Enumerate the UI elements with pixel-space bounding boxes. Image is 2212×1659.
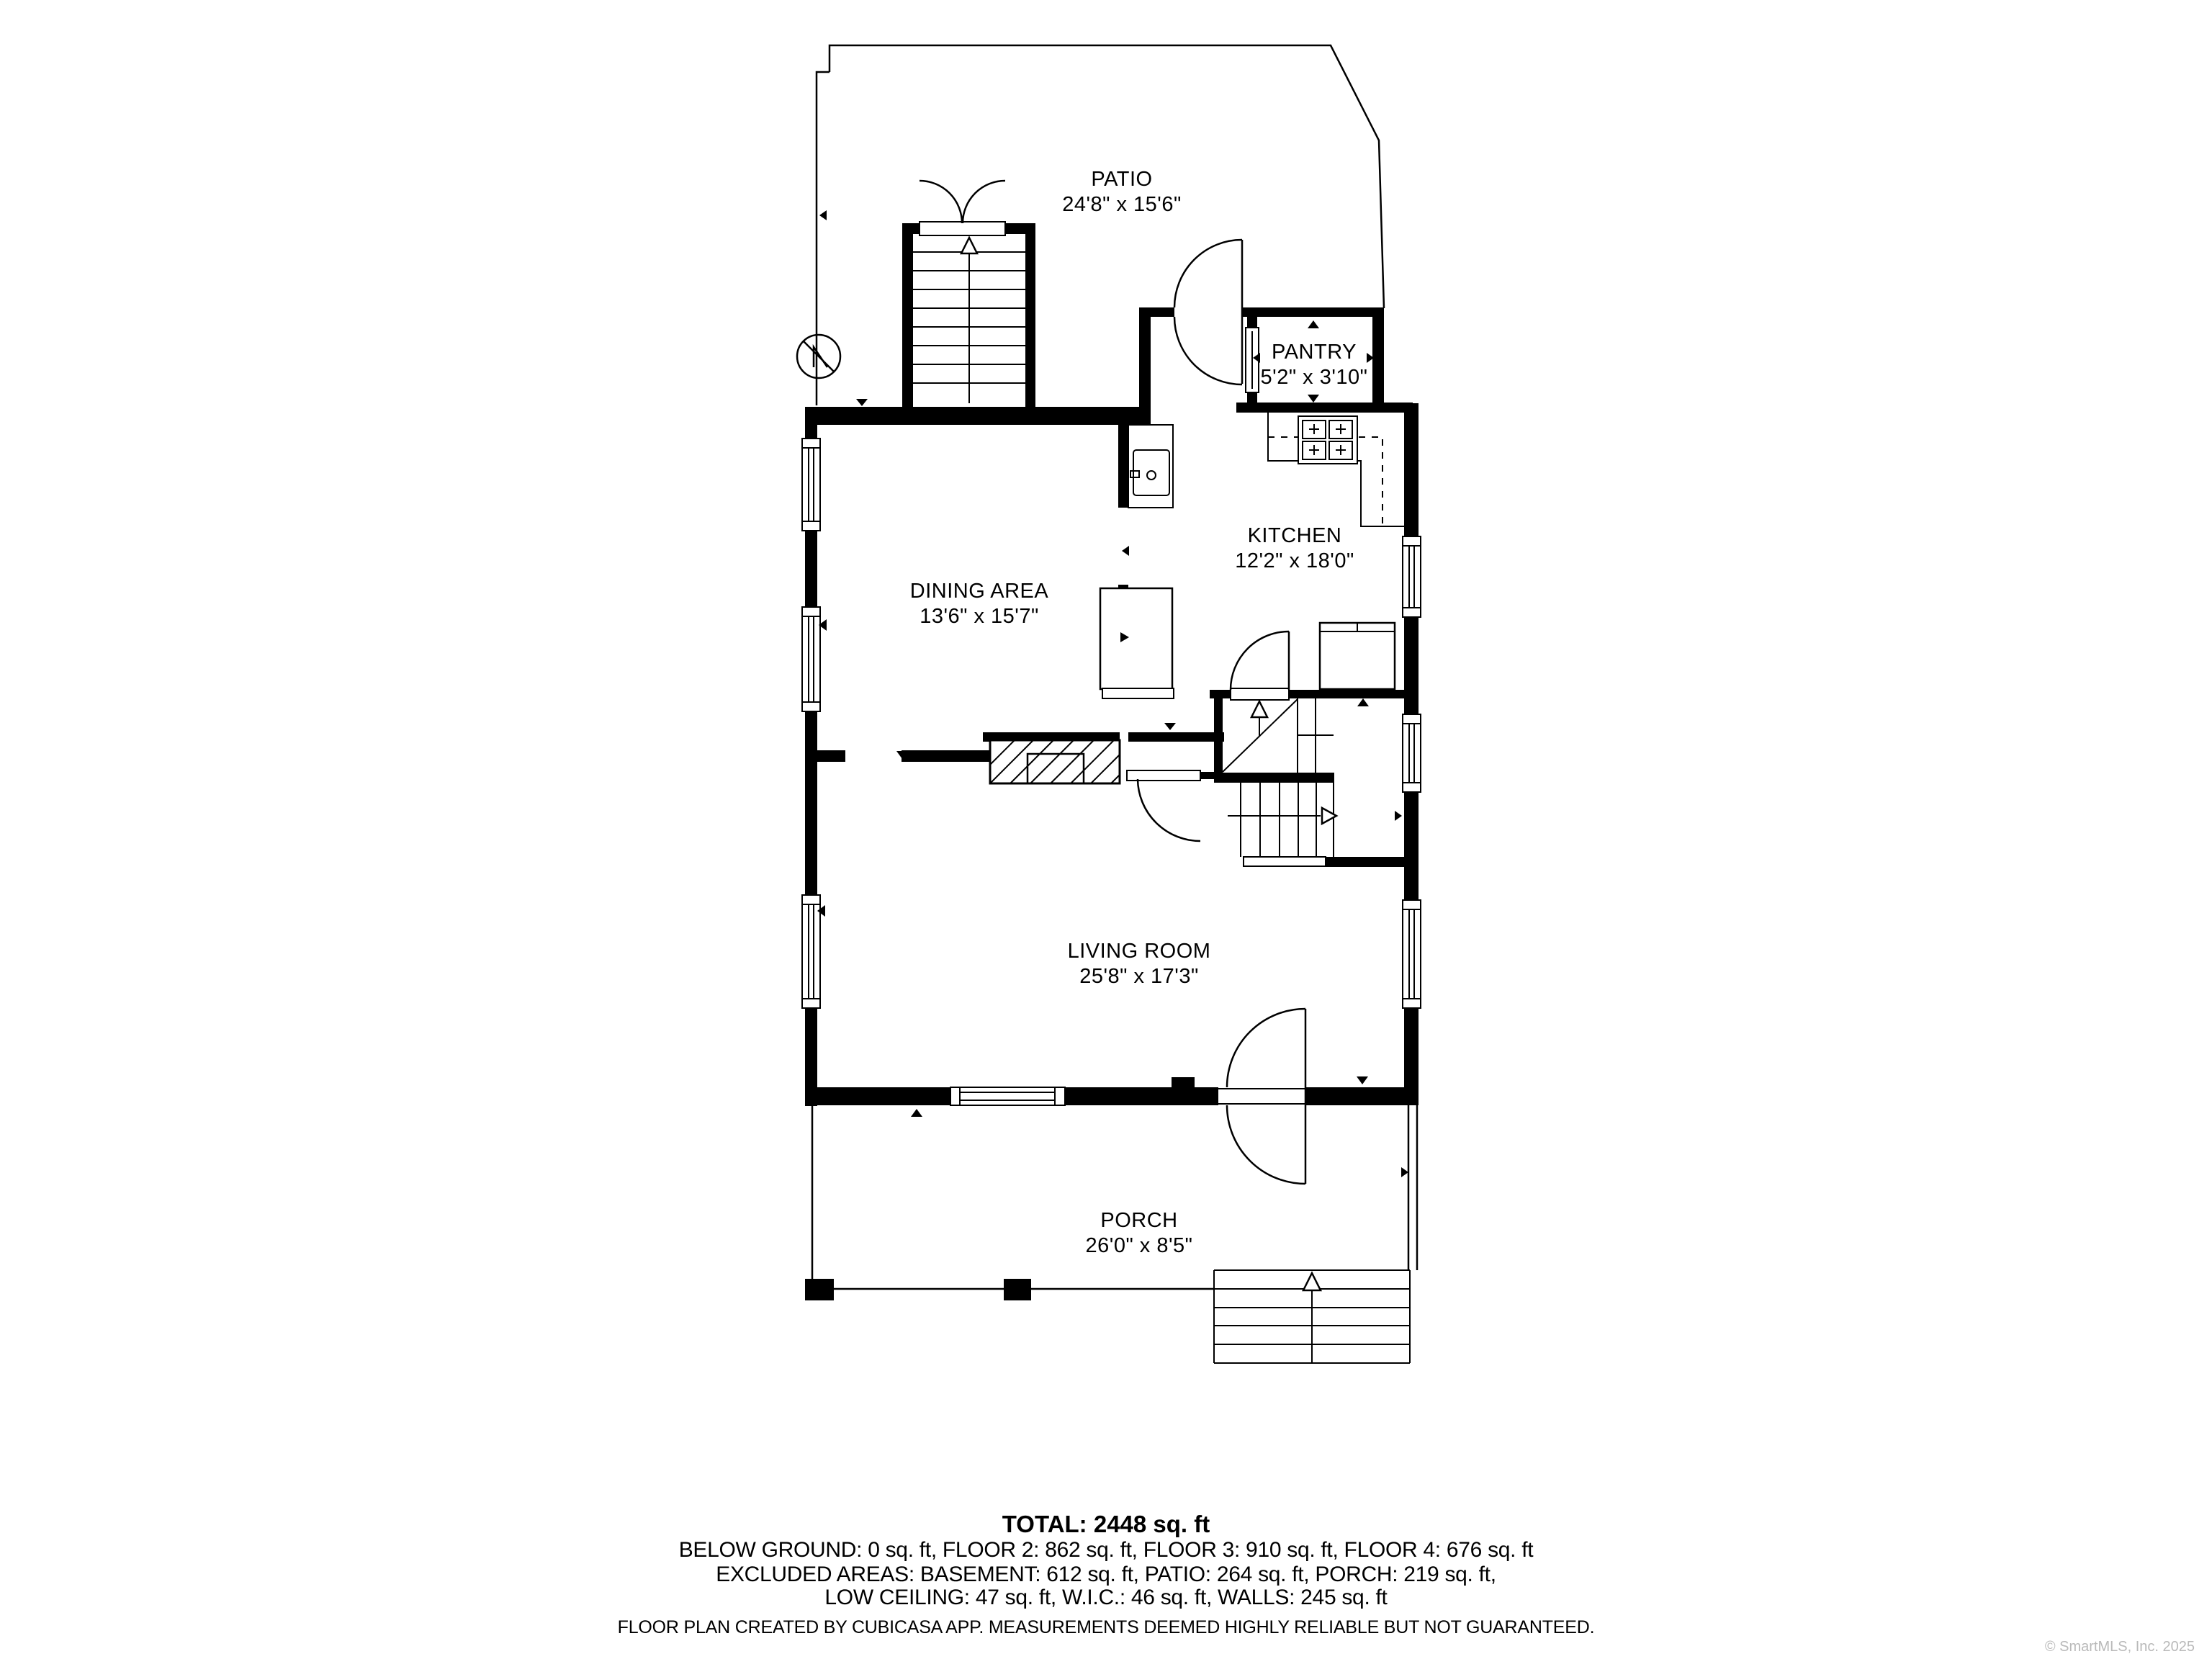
utility-meter-icon — [797, 335, 840, 378]
window-living-left — [802, 895, 820, 1008]
floor-plan-page: PATIO 24'8" x 15'6" PANTRY 5'2" x 3'10" … — [0, 0, 2212, 1659]
double-door-arc-right — [963, 181, 1005, 223]
kitchen-entry-door — [1174, 240, 1242, 385]
window-kitchen — [1403, 536, 1421, 617]
dims-patio: 24'8" x 15'6" — [1062, 193, 1182, 216]
patio-staircase — [913, 181, 1025, 403]
window-hall — [1403, 714, 1421, 792]
kitchen-hall-door — [1231, 631, 1289, 700]
label-pantry: PANTRY — [1272, 341, 1357, 364]
label-porch: PORCH — [1100, 1209, 1177, 1232]
cased-opening — [1102, 688, 1174, 698]
front-door — [1218, 1009, 1305, 1184]
dims-pantry: 5'2" x 3'10" — [1261, 366, 1368, 389]
label-dining-area: DINING AREA — [910, 580, 1049, 603]
low-ceiling-line: LOW CEILING: 47 sq. ft, W.I.C.: 46 sq. f… — [824, 1586, 1388, 1609]
stove-icon — [1298, 416, 1357, 464]
porch-steps — [1214, 1270, 1410, 1363]
double-door-arc-left — [920, 181, 962, 223]
window-dining-1 — [802, 439, 820, 531]
watermark: © SmartMLS, Inc. 2025 — [2045, 1639, 2195, 1655]
excluded-areas-line: EXCLUDED AREAS: BASEMENT: 612 sq. ft, PA… — [716, 1563, 1496, 1586]
dims-dining-area: 13'6" x 15'7" — [920, 605, 1039, 628]
floor-plan-drawing: PATIO 24'8" x 15'6" PANTRY 5'2" x 3'10" … — [0, 0, 2212, 1659]
window-living-right — [1403, 900, 1421, 1008]
window-dining-2 — [802, 607, 820, 711]
dims-living-room: 25'8" x 17'3" — [1079, 965, 1199, 988]
kitchen-sink-icon — [1128, 425, 1173, 508]
vestibule-door — [1120, 742, 1200, 841]
kitchen-island — [1100, 588, 1172, 689]
total-area: TOTAL: 2448 sq. ft — [1002, 1511, 1210, 1537]
dims-porch: 26'0" x 8'5" — [1086, 1234, 1193, 1257]
floors-area-line: BELOW GROUND: 0 sq. ft, FLOOR 2: 862 sq.… — [679, 1538, 1534, 1562]
label-kitchen: KITCHEN — [1248, 524, 1342, 547]
fireplace — [990, 740, 1120, 783]
porch-outline — [812, 1105, 1417, 1289]
label-patio: PATIO — [1091, 168, 1152, 191]
window-living-front — [950, 1087, 1065, 1105]
label-living-room: LIVING ROOM — [1068, 940, 1211, 963]
refrigerator-icon — [1320, 623, 1395, 689]
disclaimer: FLOOR PLAN CREATED BY CUBICASA APP. MEAS… — [618, 1617, 1595, 1637]
area-summary: TOTAL: 2448 sq. ft BELOW GROUND: 0 sq. f… — [618, 1511, 1595, 1637]
dims-kitchen: 12'2" x 18'0" — [1235, 549, 1354, 572]
